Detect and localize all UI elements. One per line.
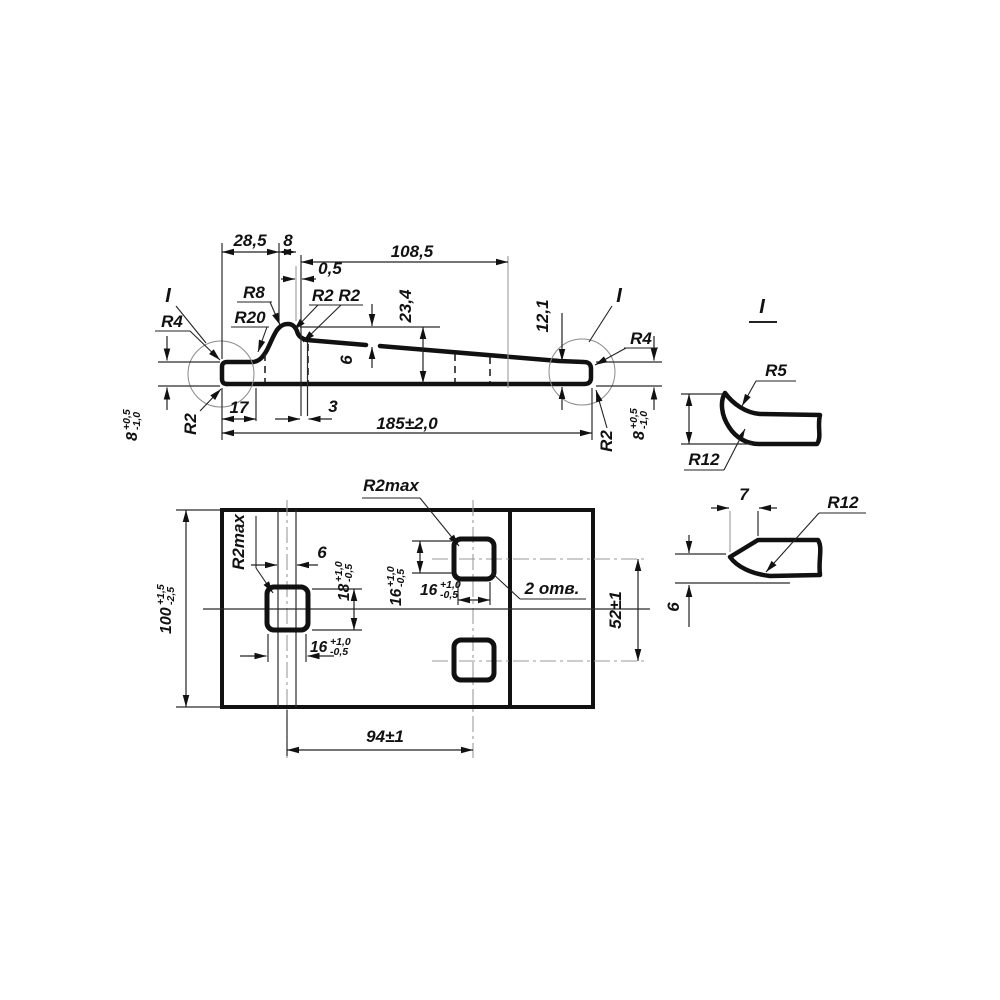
dim-label-7: 7 [739,485,750,504]
radius-label-r2max-left: R2max [229,513,248,570]
radius-label-r5: R5 [765,361,787,380]
dim-label-12-1: 12,1 [533,299,552,332]
tol-base: 16 [310,639,328,656]
holes-note: 2 отв. [524,579,580,598]
radius-label-r8: R8 [243,283,265,302]
tol-base: 16 [388,588,405,606]
dim-label-6: 6 [337,355,356,365]
dim-label-16-right-v: 16 +1,0 -0,5 [385,566,407,606]
tol-minus: -1,0 [131,412,143,430]
leader-line [492,573,520,599]
leader-line [256,568,273,593]
detail-view-i: I R5 R12 [681,296,820,470]
drawing-sheet: 28,5 8 108,5 0,5 R8 R20 R2 R2 23,4 12,1 … [0,0,1000,1000]
leader-line [200,389,221,411]
dim-label-6-band: 6 [317,543,327,562]
dim-label-94: 94±1 [366,727,404,746]
leader-line [742,381,756,406]
radius-label-r20: R20 [234,308,266,327]
dim-label-thickness-right: 8 +0,5 -1,0 [628,408,650,440]
radius-label-r2max-right: R2max [363,476,420,495]
tol-minus: -2,5 [165,587,177,605]
tol-minus: -1,0 [638,411,650,429]
radius-label-r2-pair: R2 R2 [312,286,361,305]
dim-label-3: 3 [328,397,338,416]
detail-title: I [759,296,765,318]
dim-label-28-5: 28,5 [232,231,267,250]
dim-label-18: 18 +1,0 -0,5 [333,561,355,601]
detail-circle-right [549,339,615,405]
detail-view-tip: 7 6 R12 [664,485,866,627]
tol-base: 16 [420,582,438,599]
tol-minus: -0,5 [395,569,407,587]
tol-base: 8 [631,431,648,440]
radius-label-r12-hook: R12 [688,450,720,469]
tol-minus: -0,5 [343,564,355,582]
dim-label-52: 52±1 [606,591,625,629]
tol-minus: -0,5 [440,589,458,601]
detail-mark-right: I [616,285,622,307]
leader-line [766,513,819,572]
detail-mark-left: I [165,285,171,307]
dim-label-8: 8 [283,231,293,250]
dim-label-16-right-h: 16 +1,0 -0,5 [420,579,461,601]
radius-label-r4-left: R4 [161,312,183,331]
leader-line [420,498,459,546]
radius-label-r4-right: R4 [630,329,652,348]
dim-label-thickness-left: 8 +0,5 -1,0 [121,409,143,441]
radius-label-r2-right: R2 [597,430,616,452]
dim-label-108-5: 108,5 [391,242,434,261]
side-view: 28,5 8 108,5 0,5 R8 R20 R2 R2 23,4 12,1 … [121,231,662,452]
tol-base: 100 [158,607,175,634]
tol-base: 8 [124,432,141,441]
detail-callout-line [589,306,612,342]
tip-profile [730,540,820,576]
radius-label-r12-tip: R12 [827,493,859,512]
dim-label-185: 185±2,0 [376,414,438,433]
leader-line [303,305,341,342]
leader-line [294,305,318,330]
dim-label-17: 17 [230,398,250,417]
hook-profile [722,393,820,444]
plan-view: R2max R2max 6 2 отв. 52±1 94±1 100 +1,5 … [155,476,650,758]
side-profile-outline-top [222,324,366,384]
tol-minus: -0,5 [330,646,348,658]
side-profile-outline-bottom [227,346,591,384]
dim-label-0-5: 0,5 [318,259,342,278]
dim-label-6-tip: 6 [664,602,683,612]
radius-label-r2-left: R2 [181,413,200,435]
dim-label-23-4: 23,4 [396,289,415,324]
engineering-drawing: 28,5 8 108,5 0,5 R8 R20 R2 R2 23,4 12,1 … [0,0,1000,1000]
tol-base: 18 [336,583,353,601]
dim-label-16-left: 16 +1,0 -0,5 [310,636,351,658]
dim-label-100: 100 +1,5 -2,5 [155,584,177,634]
square-hole-right-bottom [454,640,494,680]
leader-line [190,331,220,360]
